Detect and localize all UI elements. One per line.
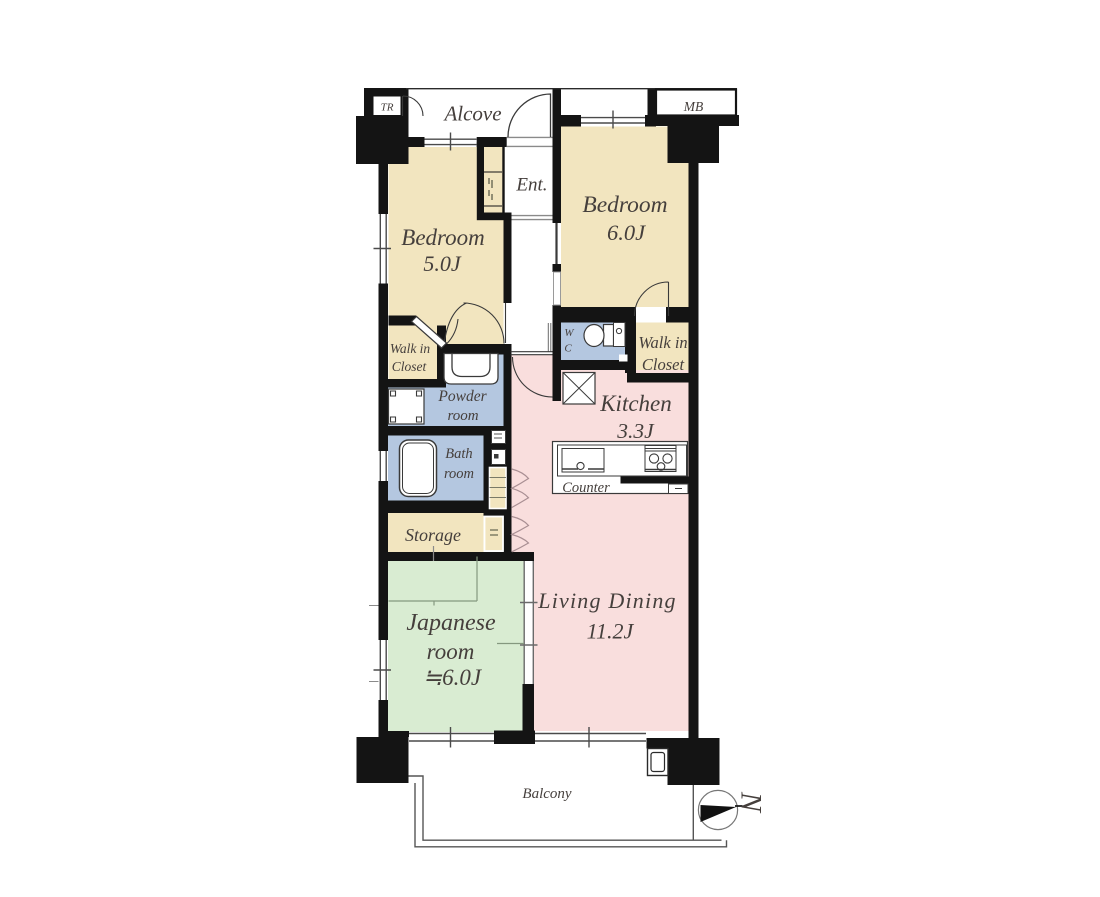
svg-text:N: N [735,791,768,814]
svg-text:MB: MB [683,99,704,114]
svg-text:Bath: Bath [445,446,472,462]
svg-text:room: room [444,466,474,482]
svg-text:Japanese: Japanese [406,610,496,636]
svg-text:C: C [564,343,572,355]
svg-text:Bedroom: Bedroom [401,225,484,250]
svg-text:room: room [447,408,478,424]
svg-text:Kitchen: Kitchen [599,391,672,416]
svg-text:5.0J: 5.0J [423,251,462,276]
svg-text:Powder: Powder [437,388,487,405]
svg-text:Counter: Counter [562,480,610,496]
svg-text:≒6.0J: ≒6.0J [423,665,483,690]
svg-text:W: W [564,327,574,339]
svg-text:Balcony: Balcony [522,786,571,802]
svg-text:Walk in: Walk in [638,333,687,352]
svg-text:Bedroom: Bedroom [582,192,667,218]
svg-text:6.0J: 6.0J [607,220,646,245]
svg-text:3.3J: 3.3J [616,419,655,443]
svg-text:Walk in: Walk in [390,341,431,356]
svg-text:Ent.: Ent. [515,175,547,196]
svg-text:room: room [427,639,475,664]
svg-text:Closet: Closet [392,359,428,374]
svg-text:11.2J: 11.2J [587,619,635,644]
svg-text:Living Dining: Living Dining [537,588,676,613]
svg-text:Alcove: Alcove [442,102,501,126]
svg-text:Closet: Closet [642,355,685,374]
svg-text:Storage: Storage [405,525,461,545]
svg-text:TR: TR [381,102,394,114]
